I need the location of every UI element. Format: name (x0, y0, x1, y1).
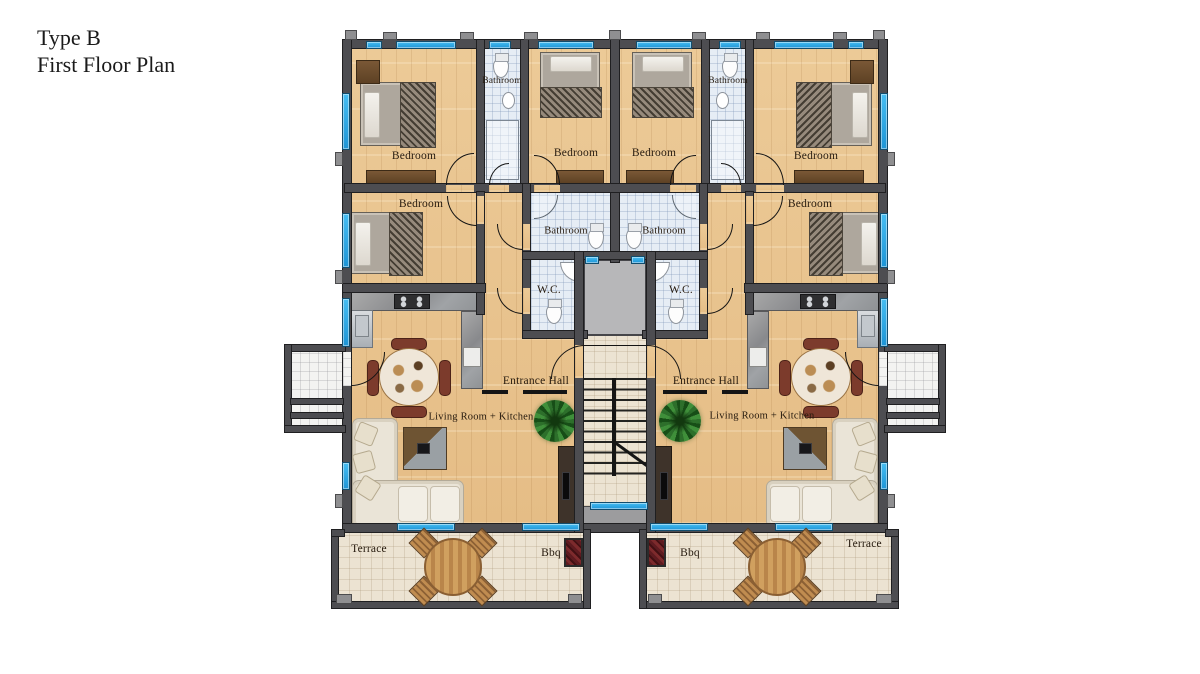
door-opening (700, 288, 707, 314)
hall-partition (482, 390, 508, 394)
wardrobe (356, 60, 380, 84)
wall (345, 184, 885, 192)
window (880, 298, 888, 347)
room-label-bedroom: Bedroom (632, 147, 676, 159)
wall-pier (887, 494, 895, 508)
wall-pier (335, 270, 343, 284)
wall-pier (833, 32, 847, 40)
tv-icon (660, 472, 668, 500)
entrance-arch (551, 345, 681, 379)
balcony-wall (885, 345, 945, 351)
balcony-wall (887, 399, 939, 404)
balcony-wall (291, 399, 343, 404)
room-label-bbq: Bbq (541, 547, 561, 559)
wall (343, 284, 485, 292)
wall (647, 252, 655, 532)
room-label-bedroom: Bedroom (788, 198, 832, 210)
window (848, 41, 864, 49)
room-label-wc: W.C. (669, 284, 693, 296)
wall (746, 40, 753, 192)
hall-partition (523, 390, 567, 394)
dining-chair (779, 360, 791, 396)
floor-plan: Bedroom Bathroom Bedroom Bedroom Bathroo… (0, 0, 1200, 674)
balcony-wall (939, 345, 945, 432)
terrace-wall (640, 602, 898, 608)
wall-pier (383, 32, 397, 40)
room-label-living-kitchen: Living Room + Kitchen (710, 411, 815, 422)
door-opening (489, 185, 509, 192)
window (719, 41, 741, 49)
window (366, 41, 382, 49)
bed (796, 82, 872, 146)
door-opening (343, 352, 351, 386)
terrace-table (748, 538, 806, 596)
window (489, 41, 511, 49)
room-label-terrace: Terrace (351, 543, 387, 555)
room-label-bedroom: Bedroom (392, 150, 436, 162)
room-label-bathroom: Bathroom (482, 76, 522, 86)
wall-pier (335, 494, 343, 508)
terrace-pier (568, 594, 582, 604)
balcony-wall (285, 426, 345, 432)
window (880, 462, 888, 490)
dresser (626, 170, 674, 184)
door-opening (746, 196, 753, 224)
bed (632, 52, 692, 118)
bbq-unit (647, 538, 666, 567)
hall-partition (722, 390, 748, 394)
terrace-wall (892, 530, 898, 608)
wall (523, 184, 530, 338)
plant-icon (659, 400, 701, 442)
balcony-step-right (887, 418, 939, 426)
balcony-wall (291, 413, 343, 418)
terrace-pier (876, 594, 892, 604)
room-label-living-kitchen: Living Room + Kitchen (429, 412, 534, 423)
dining-table (791, 348, 851, 406)
room-label-entrance-hall: Entrance Hall (673, 375, 739, 387)
balcony-step-left (291, 418, 343, 426)
door-opening (700, 224, 707, 250)
bbq-unit (564, 538, 583, 567)
terrace-wall (640, 530, 646, 608)
terrace-pier (336, 594, 352, 604)
terrace-wall (332, 530, 344, 536)
dining-table (379, 348, 439, 406)
dresser (366, 170, 436, 184)
door-opening (523, 288, 530, 314)
sofa-cushion (398, 486, 428, 522)
terrace-wall (332, 602, 590, 608)
balcony-wall (285, 345, 345, 351)
wall (611, 40, 619, 262)
room-label-bedroom: Bedroom (399, 198, 443, 210)
stair-stringer (612, 378, 616, 476)
bed (540, 52, 600, 118)
balcony-wall (887, 413, 939, 418)
wardrobe (850, 60, 874, 84)
window (396, 41, 456, 49)
terrace-door-window (522, 523, 580, 531)
stove (800, 294, 836, 309)
room-label-bathroom: Bathroom (544, 226, 588, 237)
shaft-vent (631, 256, 645, 264)
door-opening (721, 185, 741, 192)
terrace-pier (648, 594, 662, 604)
dining-chair (439, 360, 451, 396)
stove (394, 294, 430, 309)
wall-pier (460, 32, 474, 40)
dresser (794, 170, 864, 184)
window (342, 298, 350, 347)
terrace-door-window (650, 523, 708, 531)
kitchen-sink (857, 310, 879, 348)
door-opening (477, 196, 484, 224)
balcony-wall (285, 345, 291, 432)
table-tray (799, 443, 812, 454)
sofa-cushion (770, 486, 800, 522)
wall (700, 184, 707, 338)
balcony-floor-left (291, 351, 343, 399)
room-label-bbq: Bbq (680, 547, 700, 559)
wall-pier (524, 32, 538, 40)
plant-icon (534, 400, 576, 442)
room-label-terrace: Terrace (846, 538, 882, 550)
wall (523, 252, 707, 259)
wall-pier (887, 152, 895, 166)
wall (477, 40, 484, 192)
wall-pier (887, 270, 895, 284)
balcony-floor-right (887, 351, 939, 399)
room-label-bathroom: Bathroom (708, 76, 748, 86)
door-opening (670, 185, 696, 192)
door-opening (446, 185, 474, 192)
wall-pier (756, 32, 770, 40)
wall (575, 252, 583, 532)
sofa-cushion (802, 486, 832, 522)
window (880, 93, 888, 150)
window (342, 93, 350, 150)
wall-pier (345, 30, 357, 40)
table-tray (417, 443, 430, 454)
balcony-wall (885, 426, 945, 432)
window (774, 41, 834, 49)
wall-pier (873, 30, 885, 40)
terrace-wall (584, 530, 590, 608)
window (342, 213, 350, 268)
wall (702, 40, 709, 192)
window (342, 462, 350, 490)
room-label-bathroom: Bathroom (642, 226, 686, 237)
sink-icon (502, 92, 515, 109)
stair-core-shaft (583, 259, 647, 336)
room-label-bedroom: Bedroom (554, 147, 598, 159)
hall-partition (663, 390, 707, 394)
dining-chair (391, 406, 427, 418)
kitchen-sink (351, 310, 373, 348)
wall-pier (335, 152, 343, 166)
window (538, 41, 594, 49)
wall-pier (692, 32, 706, 40)
appliance (749, 347, 767, 367)
room-label-bedroom: Bedroom (794, 150, 838, 162)
terrace-wall (886, 530, 898, 536)
tv-icon (562, 472, 570, 500)
wall (521, 40, 528, 192)
door-opening (879, 352, 887, 386)
bed (351, 212, 423, 274)
door-opening (523, 224, 530, 250)
room-label-entrance-hall: Entrance Hall (503, 375, 569, 387)
terrace-table (424, 538, 482, 596)
bed (809, 212, 881, 274)
appliance (463, 347, 481, 367)
wall (745, 284, 887, 292)
dresser (556, 170, 604, 184)
balcony-step-left (291, 404, 343, 413)
balcony-step-right (887, 404, 939, 413)
wall-pier (609, 30, 621, 40)
door-opening (534, 185, 560, 192)
stairwell-window (590, 502, 648, 510)
shaft-vent (585, 256, 599, 264)
bed (360, 82, 436, 146)
window (636, 41, 692, 49)
sink-icon (716, 92, 729, 109)
sofa-cushion (430, 486, 460, 522)
room-label-wc: W.C. (537, 284, 561, 296)
door-opening (756, 185, 784, 192)
window (880, 213, 888, 268)
